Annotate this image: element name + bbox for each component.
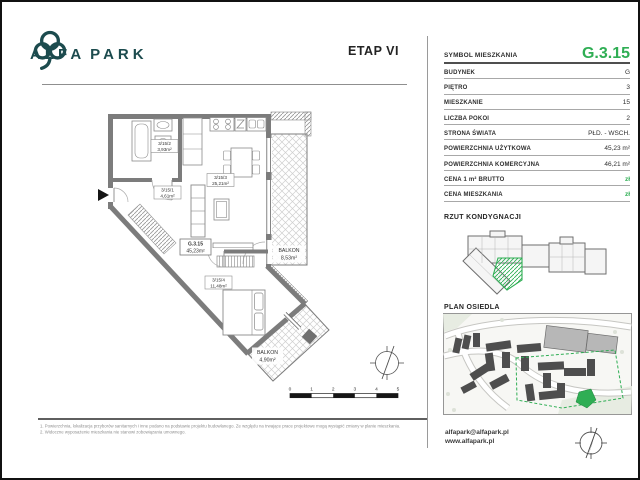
etap-title: ETAP VI <box>348 44 399 58</box>
bed <box>223 290 265 335</box>
row-label: CENA 1 m² BRUTTO <box>444 177 505 183</box>
alfa-park-logo: ALFA PARK <box>30 46 148 63</box>
dining-set <box>224 148 260 177</box>
logo-text-park: PARK <box>90 46 147 63</box>
scale-tick-4: 4 <box>375 387 378 393</box>
detail-row-pietro: PIĘTRO 3 <box>444 79 630 94</box>
tree-logo-icon <box>30 27 70 73</box>
detail-row-mieszkanie: MIESZKANIE 15 <box>444 95 630 110</box>
row-value: zł <box>625 176 630 183</box>
compass-rose-icon <box>370 346 404 380</box>
balkon-bottom-label: BALKON <box>257 350 278 356</box>
balkon-bottom-area: 4,90m² <box>259 358 275 364</box>
detail-row-liczba-pokoi: LICZBA POKOI 2 <box>444 110 630 125</box>
footnote-2: 2. Widoczne wyposażenie mieszkania nie s… <box>40 429 425 435</box>
apartment-floorplan: 3/15/2 3,93m² 3/15/1 4,61m² 3/15/3 25,21… <box>92 102 437 412</box>
symbol-label: SYMBOL MIESZKANIA <box>444 52 517 62</box>
balkon-right-area: 8,53m² <box>281 256 297 262</box>
symbol-value: G.3.15 <box>582 46 630 62</box>
footnotes: 1. Powierzchnia, lokalizacja przyborów s… <box>40 423 425 435</box>
scale-tick-2: 2 <box>332 387 335 393</box>
detail-row-strona-swiata: STRONA ŚWIATA PŁD. - WSCH. <box>444 125 630 140</box>
neighbor-wall-right <box>305 112 311 136</box>
entrance-arrow-icon <box>98 189 109 201</box>
radiator <box>217 256 254 267</box>
room-label-hall-code: 3/15/1 <box>161 188 174 193</box>
scale-tick-5: 5 <box>397 387 400 393</box>
balcony-right <box>271 134 307 265</box>
row-label: CENA MIESZKANIA <box>444 192 503 198</box>
compass-rose-icon <box>574 426 608 460</box>
symbol-row: SYMBOL MIESZKANIA G.3.15 <box>444 44 630 64</box>
section-heading-rzut: RZUT KONDYGNACJI <box>444 214 521 221</box>
hall-wardrobe <box>128 204 176 254</box>
unit-label-code: G.3.15 <box>188 242 203 248</box>
row-value: 45,23 m² <box>604 145 630 152</box>
row-value: G <box>625 69 630 76</box>
row-label: POWIERZCHNIA UŻYTKOWA <box>444 146 531 152</box>
scale-tick-1: 1 <box>310 387 313 393</box>
detail-row-cena-brutto: CENA 1 m² BRUTTO zł <box>444 171 630 186</box>
floor-key-plan <box>454 226 632 298</box>
detail-row-pow-uzytkowa: POWIERZCHNIA UŻYTKOWA 45,23 m² <box>444 141 630 156</box>
row-value: 46,21 m² <box>604 161 630 168</box>
row-label: LICZBA POKOI <box>444 116 489 122</box>
row-label: BUDYNEK <box>444 70 475 76</box>
section-heading-osiedle: PLAN OSIEDLA <box>444 304 500 311</box>
detail-row-cena-mieszkania: CENA MIESZKANIA zł <box>444 186 630 201</box>
row-label: MIESZKANIE <box>444 100 483 106</box>
room-label-living-area: 25,21m² <box>212 181 229 186</box>
entry-door <box>108 188 129 202</box>
row-value: 15 <box>623 99 630 106</box>
scale-bar: 0 1 2 3 4 5 <box>289 387 400 398</box>
contact-website: www.alfapark.pl <box>445 438 509 447</box>
room-label-hall-area: 4,61m² <box>160 194 175 199</box>
row-value: zł <box>625 191 630 198</box>
footer-rule <box>38 418 427 420</box>
scale-tick-3: 3 <box>353 387 356 393</box>
row-label: PIĘTRO <box>444 85 468 91</box>
brochure-page: ALFA PARK ETAP VI <box>0 0 640 480</box>
header-rule <box>42 84 407 85</box>
row-value: 3 <box>626 84 630 91</box>
balkon-right-label: BALKON <box>278 248 299 254</box>
detail-row-budynek: BUDYNEK G <box>444 64 630 79</box>
room-label-bathroom-code: 3/15/2 <box>158 141 171 146</box>
room-label-bedroom-area: 11,48m² <box>210 284 227 289</box>
unit-label-area: 45,23m² <box>186 249 205 255</box>
room-label-bedroom-code: 3/15/4 <box>212 278 225 283</box>
scale-tick-0: 0 <box>289 387 292 393</box>
row-value: PŁD. - WSCH. <box>588 130 630 137</box>
contact-email: alfapark@alfapark.pl <box>445 429 509 438</box>
row-label: POWIERZCHNIA KOMERCYJNA <box>444 162 540 168</box>
estate-map <box>443 313 632 415</box>
detail-row-pow-komercyjna: POWIERZCHNIA KOMERCYJNA 46,21 m² <box>444 156 630 171</box>
room-label-bathroom-area: 3,93m² <box>157 147 172 152</box>
row-label: STRONA ŚWIATA <box>444 131 496 137</box>
room-label-living-code: 3/15/3 <box>214 175 227 180</box>
contact-block: alfapark@alfapark.pl www.alfapark.pl <box>445 429 509 447</box>
row-value: 2 <box>626 115 630 122</box>
